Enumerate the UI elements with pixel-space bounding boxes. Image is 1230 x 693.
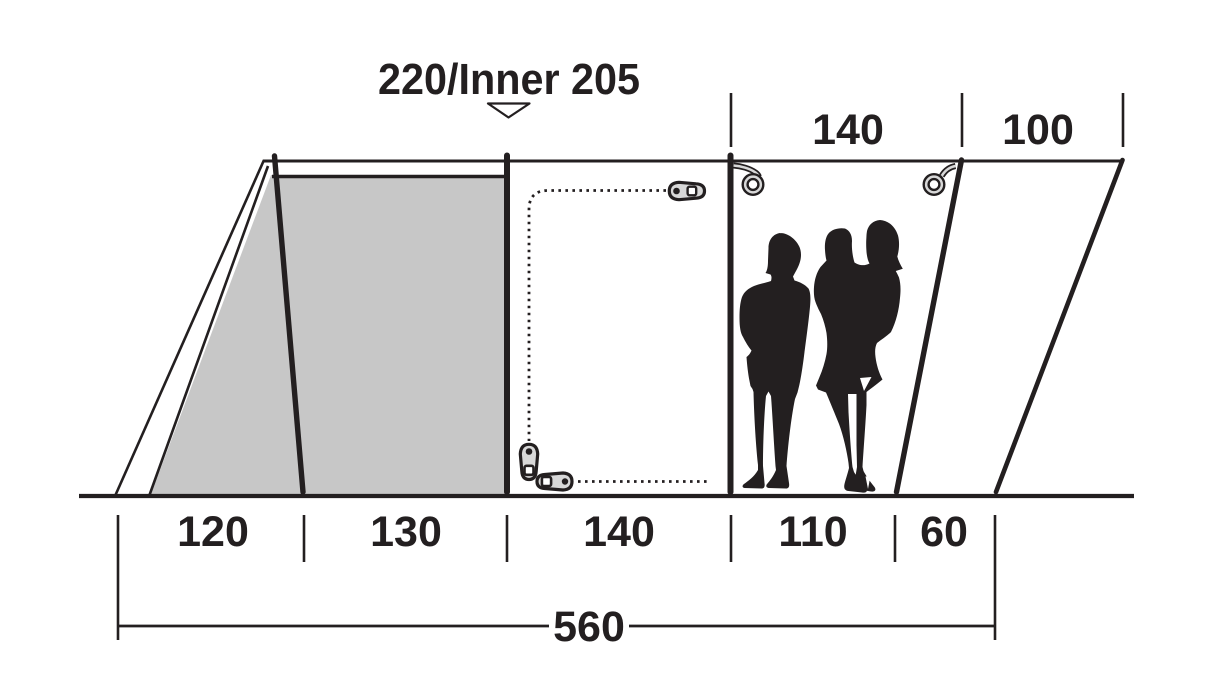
svg-text:100: 100	[1002, 106, 1074, 154]
svg-text:110: 110	[778, 508, 847, 556]
svg-text:140: 140	[583, 508, 655, 556]
svg-text:60: 60	[920, 508, 968, 556]
svg-text:130: 130	[370, 508, 442, 556]
svg-text:120: 120	[177, 508, 249, 556]
svg-text:220/Inner 205: 220/Inner 205	[378, 55, 640, 104]
svg-text:560: 560	[553, 603, 625, 651]
svg-text:140: 140	[812, 106, 884, 154]
